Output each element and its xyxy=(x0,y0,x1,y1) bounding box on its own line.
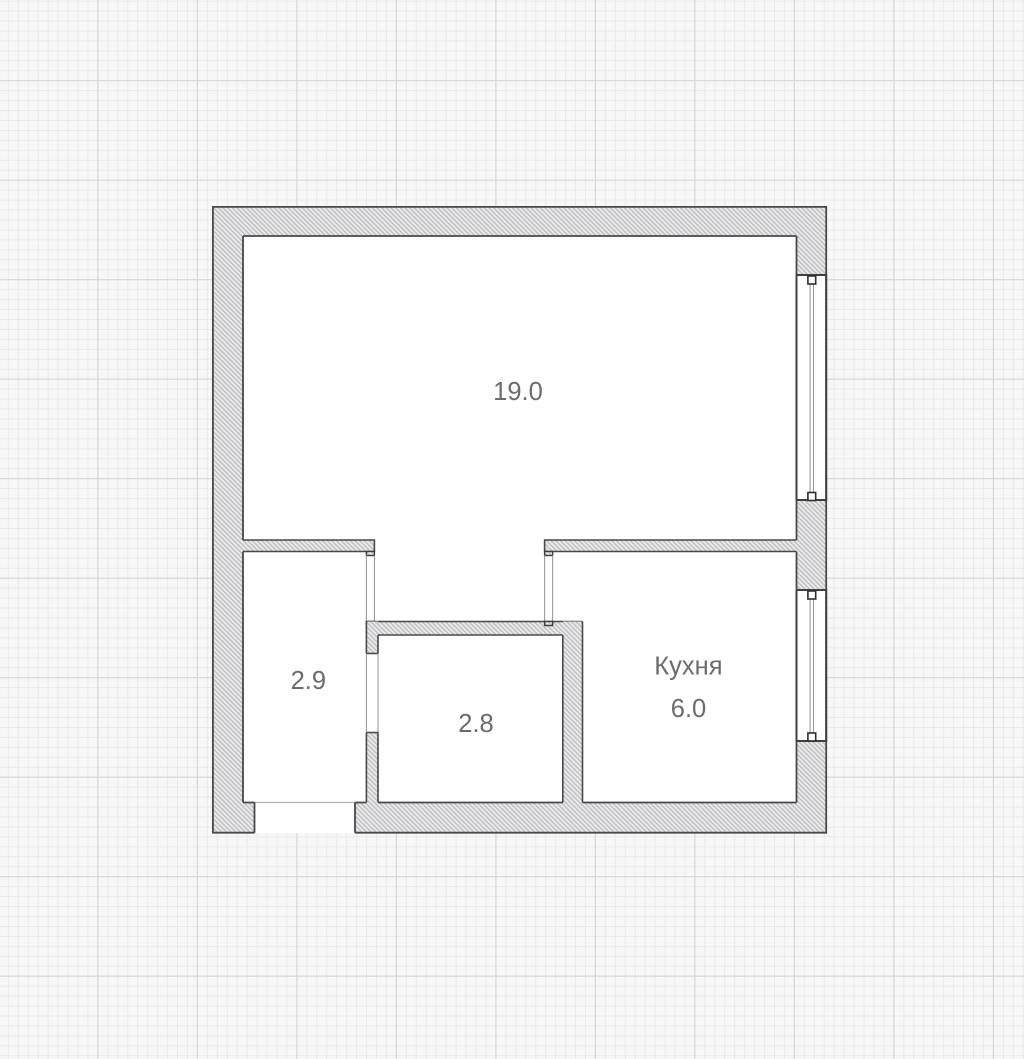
svg-text:2.8: 2.8 xyxy=(458,710,493,738)
svg-text:2.9: 2.9 xyxy=(291,667,326,695)
svg-text:6.0: 6.0 xyxy=(671,695,706,723)
svg-text:Кухня: Кухня xyxy=(654,653,722,681)
svg-text:19.0: 19.0 xyxy=(493,378,543,406)
